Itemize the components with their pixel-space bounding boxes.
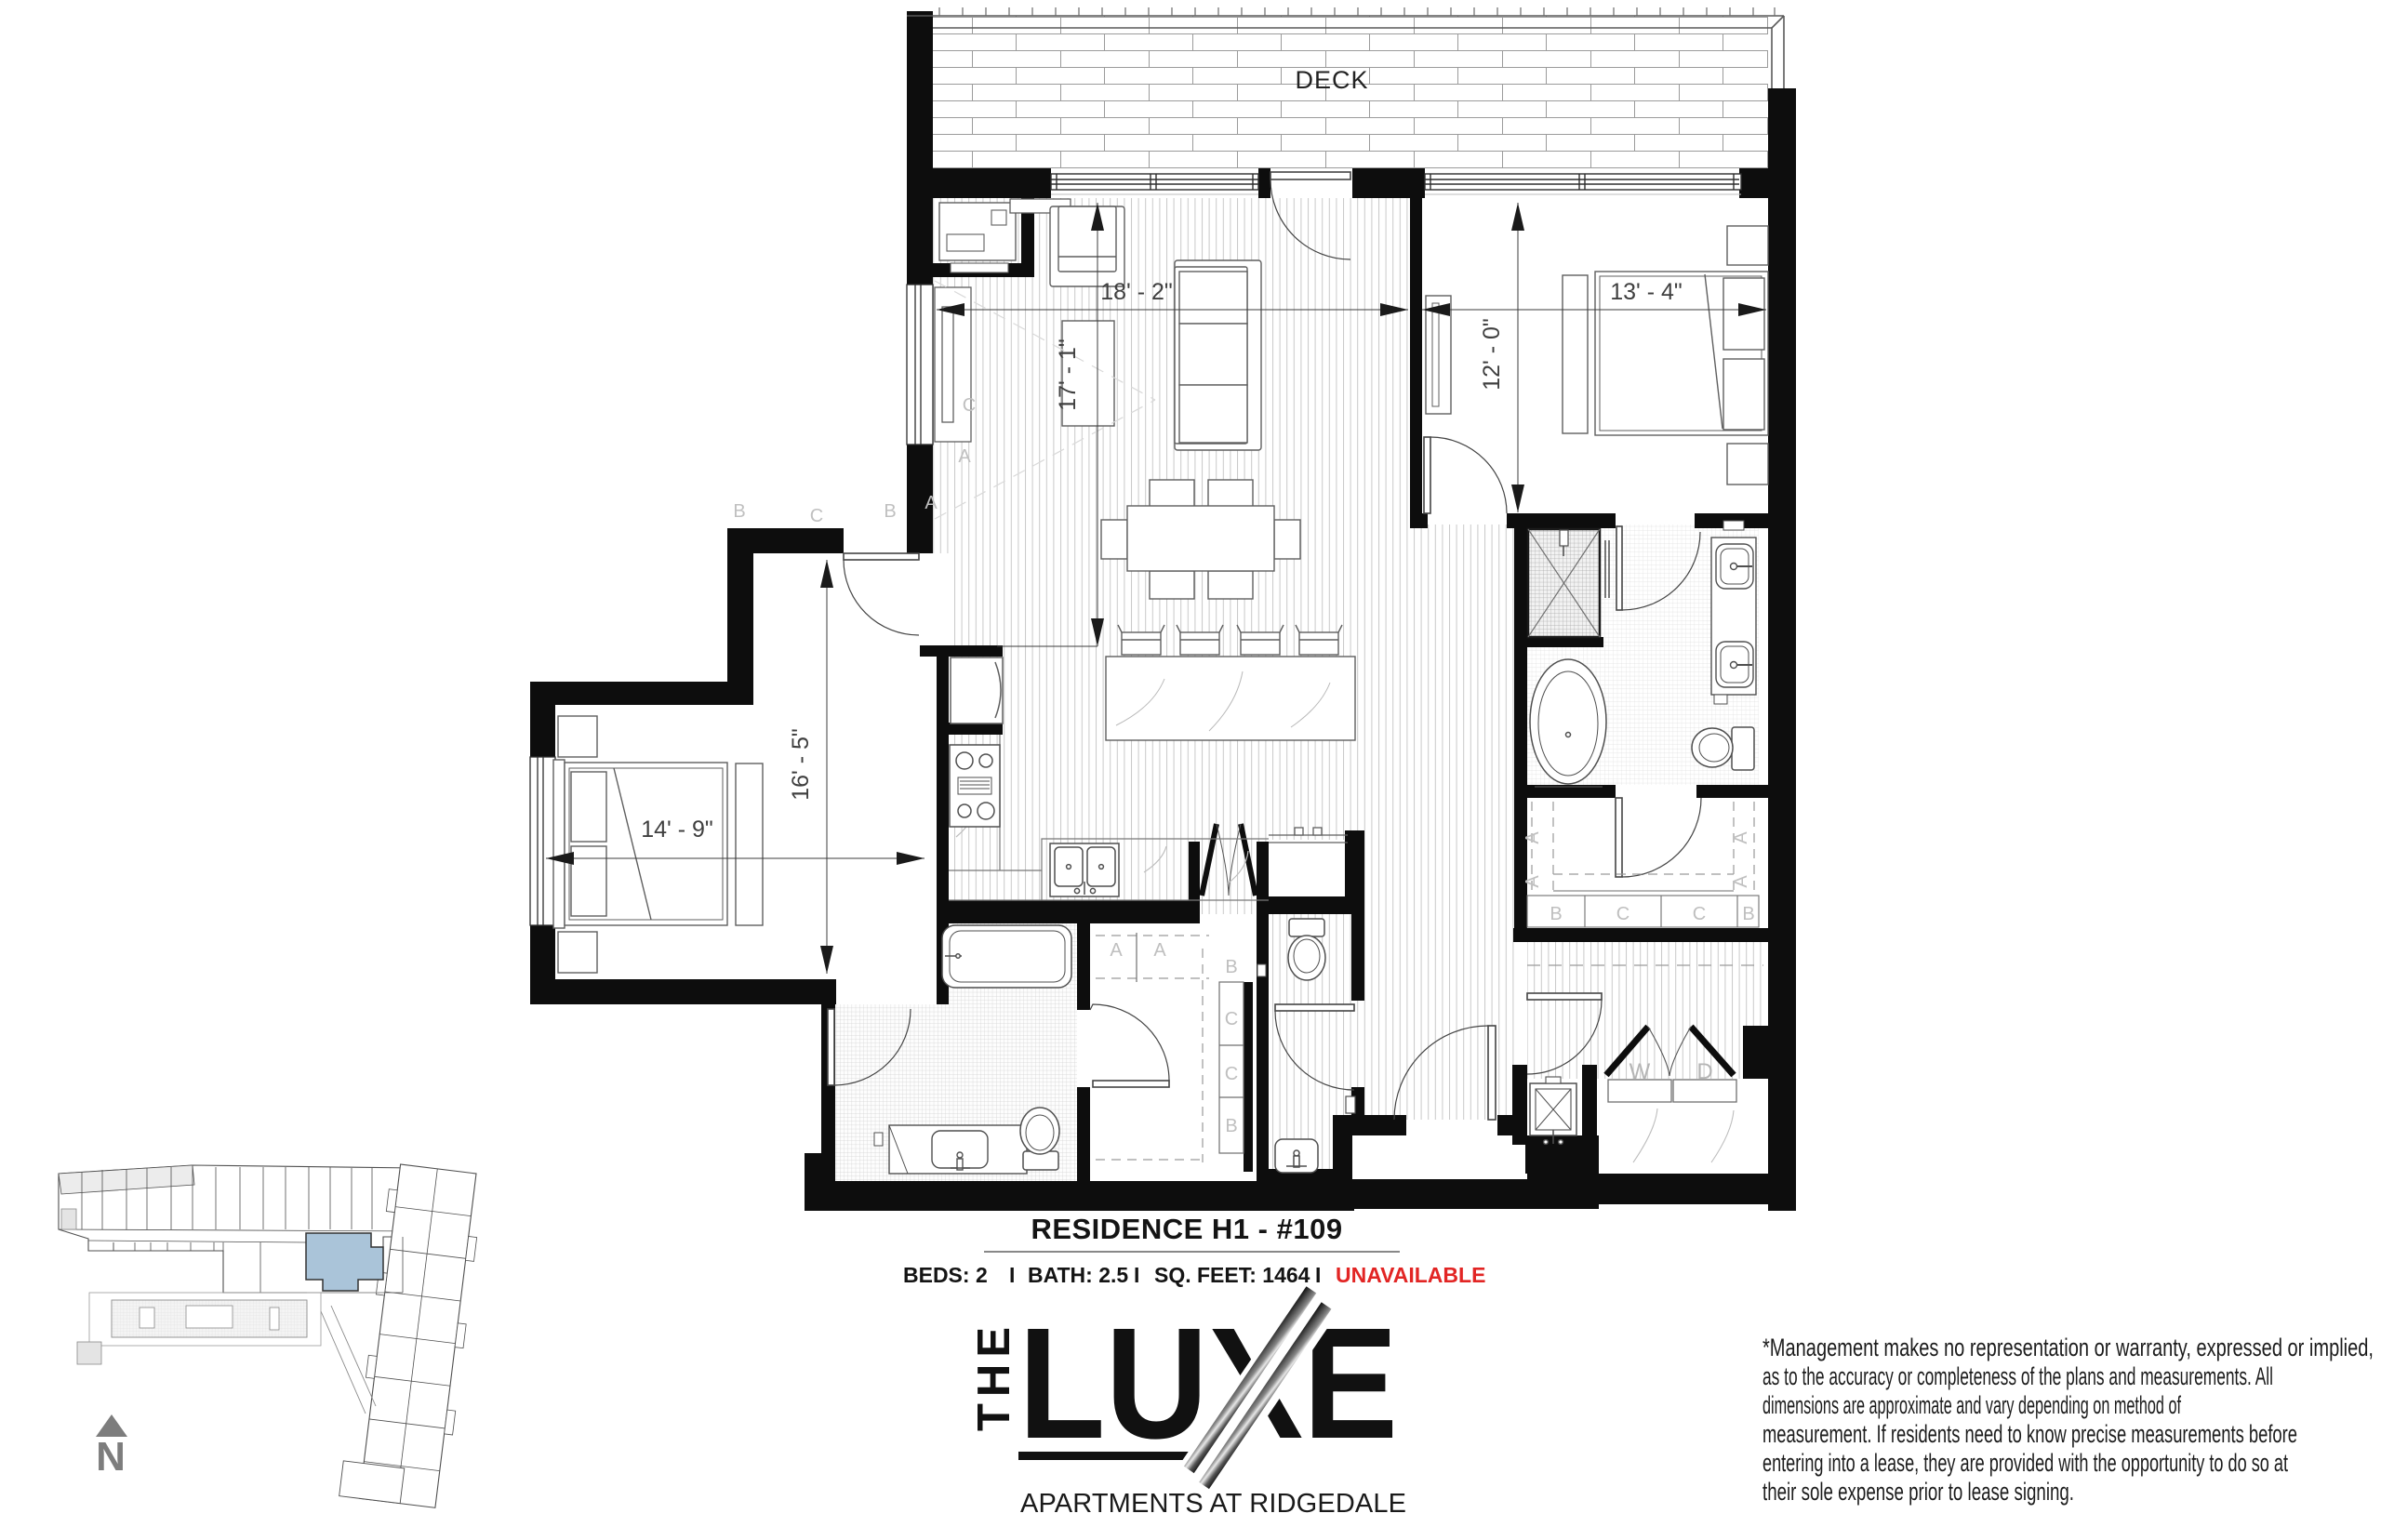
svg-text:B: B — [884, 501, 896, 522]
svg-text:C: C — [810, 506, 823, 526]
svg-text:A: A — [1731, 831, 1751, 844]
svg-text:B: B — [1742, 904, 1754, 924]
svg-text:C: C — [1693, 904, 1706, 924]
svg-text:*Management makes no represent: *Management makes no representation or w… — [1762, 1334, 2374, 1361]
svg-text:SQ. FEET: 1464: SQ. FEET: 1464 — [1154, 1263, 1310, 1287]
svg-text:B: B — [733, 501, 745, 522]
svg-text:17' - 1": 17' - 1" — [1055, 339, 1081, 411]
svg-text:RESIDENCE H1 - #109: RESIDENCE H1 - #109 — [1031, 1213, 1342, 1245]
svg-text:12' - 0": 12' - 0" — [1479, 318, 1505, 391]
svg-text:16' - 5": 16' - 5" — [788, 728, 814, 801]
svg-text:dimensions are approximate and: dimensions are approximate and vary depe… — [1762, 1391, 2181, 1419]
svg-text:C: C — [963, 395, 976, 416]
svg-text:A: A — [924, 493, 938, 513]
svg-text:THE: THE — [969, 1321, 1019, 1431]
svg-text:A: A — [1110, 940, 1123, 961]
svg-text:C: C — [1616, 904, 1629, 924]
svg-text:BEDS: 2: BEDS: 2 — [903, 1263, 988, 1287]
svg-text:14' - 9": 14' - 9" — [641, 816, 713, 843]
svg-text:entering into a lease, they ar: entering into a lease, they are provided… — [1762, 1449, 2288, 1477]
svg-text:BATH: 2.5: BATH: 2.5 — [1028, 1263, 1128, 1287]
svg-text:B: B — [1550, 904, 1562, 924]
svg-text:N: N — [96, 1434, 126, 1480]
svg-text:C: C — [1225, 1064, 1238, 1084]
svg-text:13' - 4": 13' - 4" — [1610, 279, 1683, 305]
svg-text:I: I — [1009, 1263, 1015, 1287]
svg-text:B: B — [1225, 1116, 1237, 1136]
svg-text:A: A — [1153, 940, 1166, 961]
svg-text:I: I — [1315, 1263, 1321, 1287]
svg-text:B: B — [1225, 957, 1237, 977]
svg-text:as to the accuracy or complete: as to the accuracy or completeness of th… — [1762, 1362, 2273, 1390]
svg-text:18' - 2": 18' - 2" — [1100, 279, 1173, 305]
svg-text:DECK: DECK — [1295, 66, 1368, 94]
svg-text:APARTMENTS AT RIDGEDALE: APARTMENTS AT RIDGEDALE — [1020, 1489, 1408, 1519]
svg-text:A: A — [1523, 831, 1543, 844]
svg-text:A: A — [1731, 875, 1751, 888]
svg-text:A: A — [958, 446, 971, 467]
svg-text:measurement. If residents need: measurement. If residents need to know p… — [1762, 1420, 2297, 1448]
svg-text:C: C — [1225, 1009, 1238, 1029]
svg-text:their sole expense prior to le: their sole expense prior to lease signin… — [1762, 1478, 2074, 1506]
svg-text:I: I — [1134, 1263, 1139, 1287]
svg-text:UNAVAILABLE: UNAVAILABLE — [1336, 1263, 1485, 1287]
svg-text:A: A — [1523, 875, 1543, 888]
